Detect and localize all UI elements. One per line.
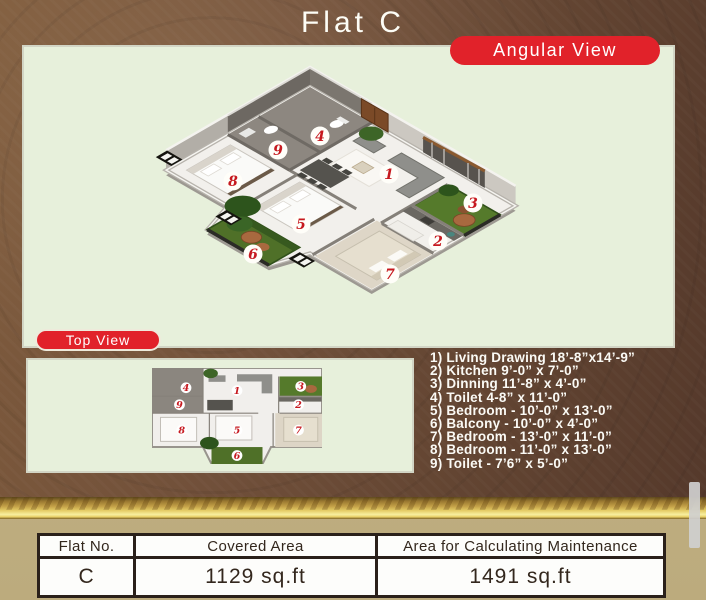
marker-1: 1 <box>380 165 399 184</box>
top-view-panel: 1 2 3 4 5 6 7 8 9 <box>26 358 414 473</box>
svg-text:2: 2 <box>294 400 302 411</box>
svg-text:3: 3 <box>297 382 304 393</box>
svg-text:6: 6 <box>248 247 258 263</box>
svg-text:7: 7 <box>295 426 302 437</box>
marker-5: 5 <box>292 215 311 234</box>
marker-6: 6 <box>244 245 263 264</box>
angular-floorplan: 1 2 3 4 5 6 7 8 9 <box>24 47 675 346</box>
angular-view-panel: 1 2 3 4 5 6 7 8 9 <box>22 45 675 348</box>
marker-3: 3 <box>464 194 483 213</box>
areas-table: Flat No. Covered Area Area for Calculati… <box>37 533 666 598</box>
page-title: Flat C <box>0 6 706 40</box>
marker-7: 7 <box>381 265 400 284</box>
svg-text:2: 2 <box>432 234 443 250</box>
top-view-floorplan: 1 2 3 4 5 6 7 8 9 <box>152 368 322 464</box>
covered-area-value: 1129 sq.ft <box>135 558 377 597</box>
top-view-badge: Top View <box>35 329 161 351</box>
svg-text:8: 8 <box>178 426 185 437</box>
svg-text:9: 9 <box>273 143 283 159</box>
svg-text:9: 9 <box>176 400 183 411</box>
svg-text:6: 6 <box>234 451 241 462</box>
svg-text:3: 3 <box>468 196 478 212</box>
flat-no-value: C <box>39 558 135 597</box>
svg-text:5: 5 <box>296 217 306 233</box>
marker-9: 9 <box>269 141 288 160</box>
maintenance-area-value: 1491 sq.ft <box>376 558 664 597</box>
floor-group <box>119 77 516 306</box>
legend-item: 3) Dinning 11’-8” x 4’-0” <box>430 377 635 390</box>
brochure-page: Flat C <box>0 0 706 600</box>
svg-text:1: 1 <box>234 386 241 397</box>
table-header-row: Flat No. Covered Area Area for Calculati… <box>39 535 665 558</box>
header-maintenance-area: Area for Calculating Maintenance <box>376 535 664 558</box>
svg-text:5: 5 <box>234 426 241 437</box>
marker-8: 8 <box>224 172 243 191</box>
table-value-row: C 1129 sq.ft 1491 sq.ft <box>39 558 665 597</box>
gold-ornate-band <box>0 497 706 519</box>
svg-text:1: 1 <box>384 167 394 183</box>
legend-item: 8) Bedroom - 11’-0” x 13’-0” <box>430 443 635 456</box>
angular-view-badge: Angular View <box>450 36 660 65</box>
room-legend: 1) Living Drawing 18’-8”x14’-9” 2) Kitch… <box>430 351 635 470</box>
marker-2: 2 <box>429 232 448 251</box>
legend-item: 9) Toilet - 7’6” x 5’-0” <box>430 457 635 470</box>
header-covered-area: Covered Area <box>135 535 377 558</box>
header-flat-no: Flat No. <box>39 535 135 558</box>
marker-4: 4 <box>311 127 330 146</box>
legend-item: 4) Toilet 4-8” x 11’-0” <box>430 391 635 404</box>
scrollbar-thumb[interactable] <box>689 482 700 548</box>
svg-text:8: 8 <box>228 174 238 190</box>
svg-text:4: 4 <box>183 383 190 394</box>
svg-text:7: 7 <box>385 267 395 283</box>
svg-text:4: 4 <box>315 129 325 145</box>
